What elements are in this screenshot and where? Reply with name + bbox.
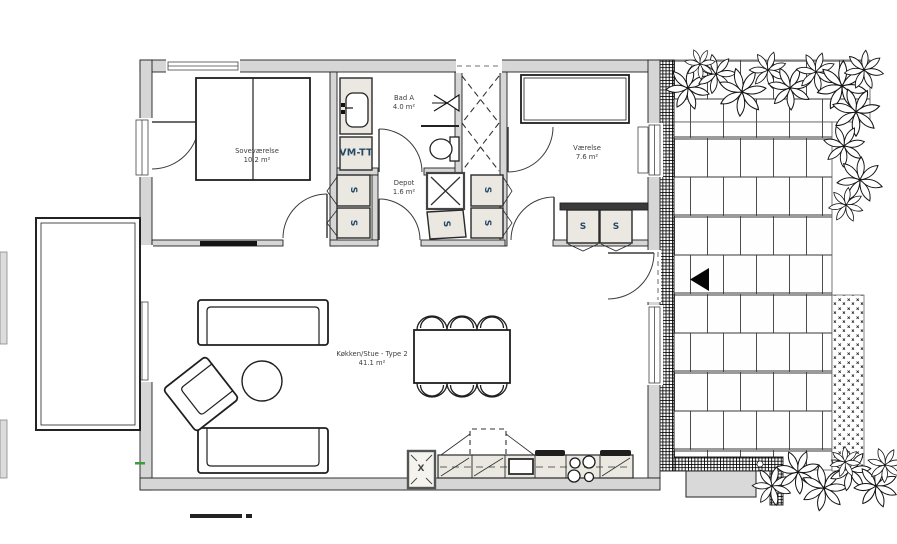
coffee-table — [242, 361, 282, 401]
washer-dryer-box — [340, 137, 372, 170]
dining-table — [414, 330, 510, 383]
shower-icon — [432, 95, 459, 111]
shaft-box — [427, 173, 464, 209]
planting-bed — [832, 295, 864, 471]
beds — [196, 75, 629, 180]
toilet-icon — [430, 137, 459, 161]
reference-mark — [135, 462, 145, 465]
lower-unit-wall-mark — [246, 514, 252, 518]
floor-plan: Soveværelse 10.2 m² Bad A 4.0 m² Depot 1… — [0, 0, 897, 544]
lower-wall-block — [686, 471, 756, 497]
vent-shaft-dashed — [462, 76, 499, 171]
exterior-hatched-wall — [660, 60, 674, 471]
edge-artifacts — [0, 252, 7, 478]
extractor-hood-dashed — [470, 429, 506, 454]
sofa-top — [198, 300, 328, 345]
armchair — [163, 356, 239, 432]
counter-appliance — [535, 450, 565, 456]
counter-appliance — [600, 450, 631, 456]
wall-black-segment — [200, 241, 257, 246]
kitchen-sink-icon — [509, 459, 533, 474]
sink-icon — [346, 93, 368, 127]
drain-icon — [757, 461, 763, 467]
balcony — [36, 218, 140, 430]
sofa-bottom — [198, 428, 328, 473]
terrace — [660, 45, 897, 521]
lower-unit-wall-mark — [190, 514, 242, 518]
dining-set — [414, 316, 510, 397]
bathroom-fixtures — [340, 78, 459, 170]
floor-plan-drawing — [0, 0, 897, 544]
